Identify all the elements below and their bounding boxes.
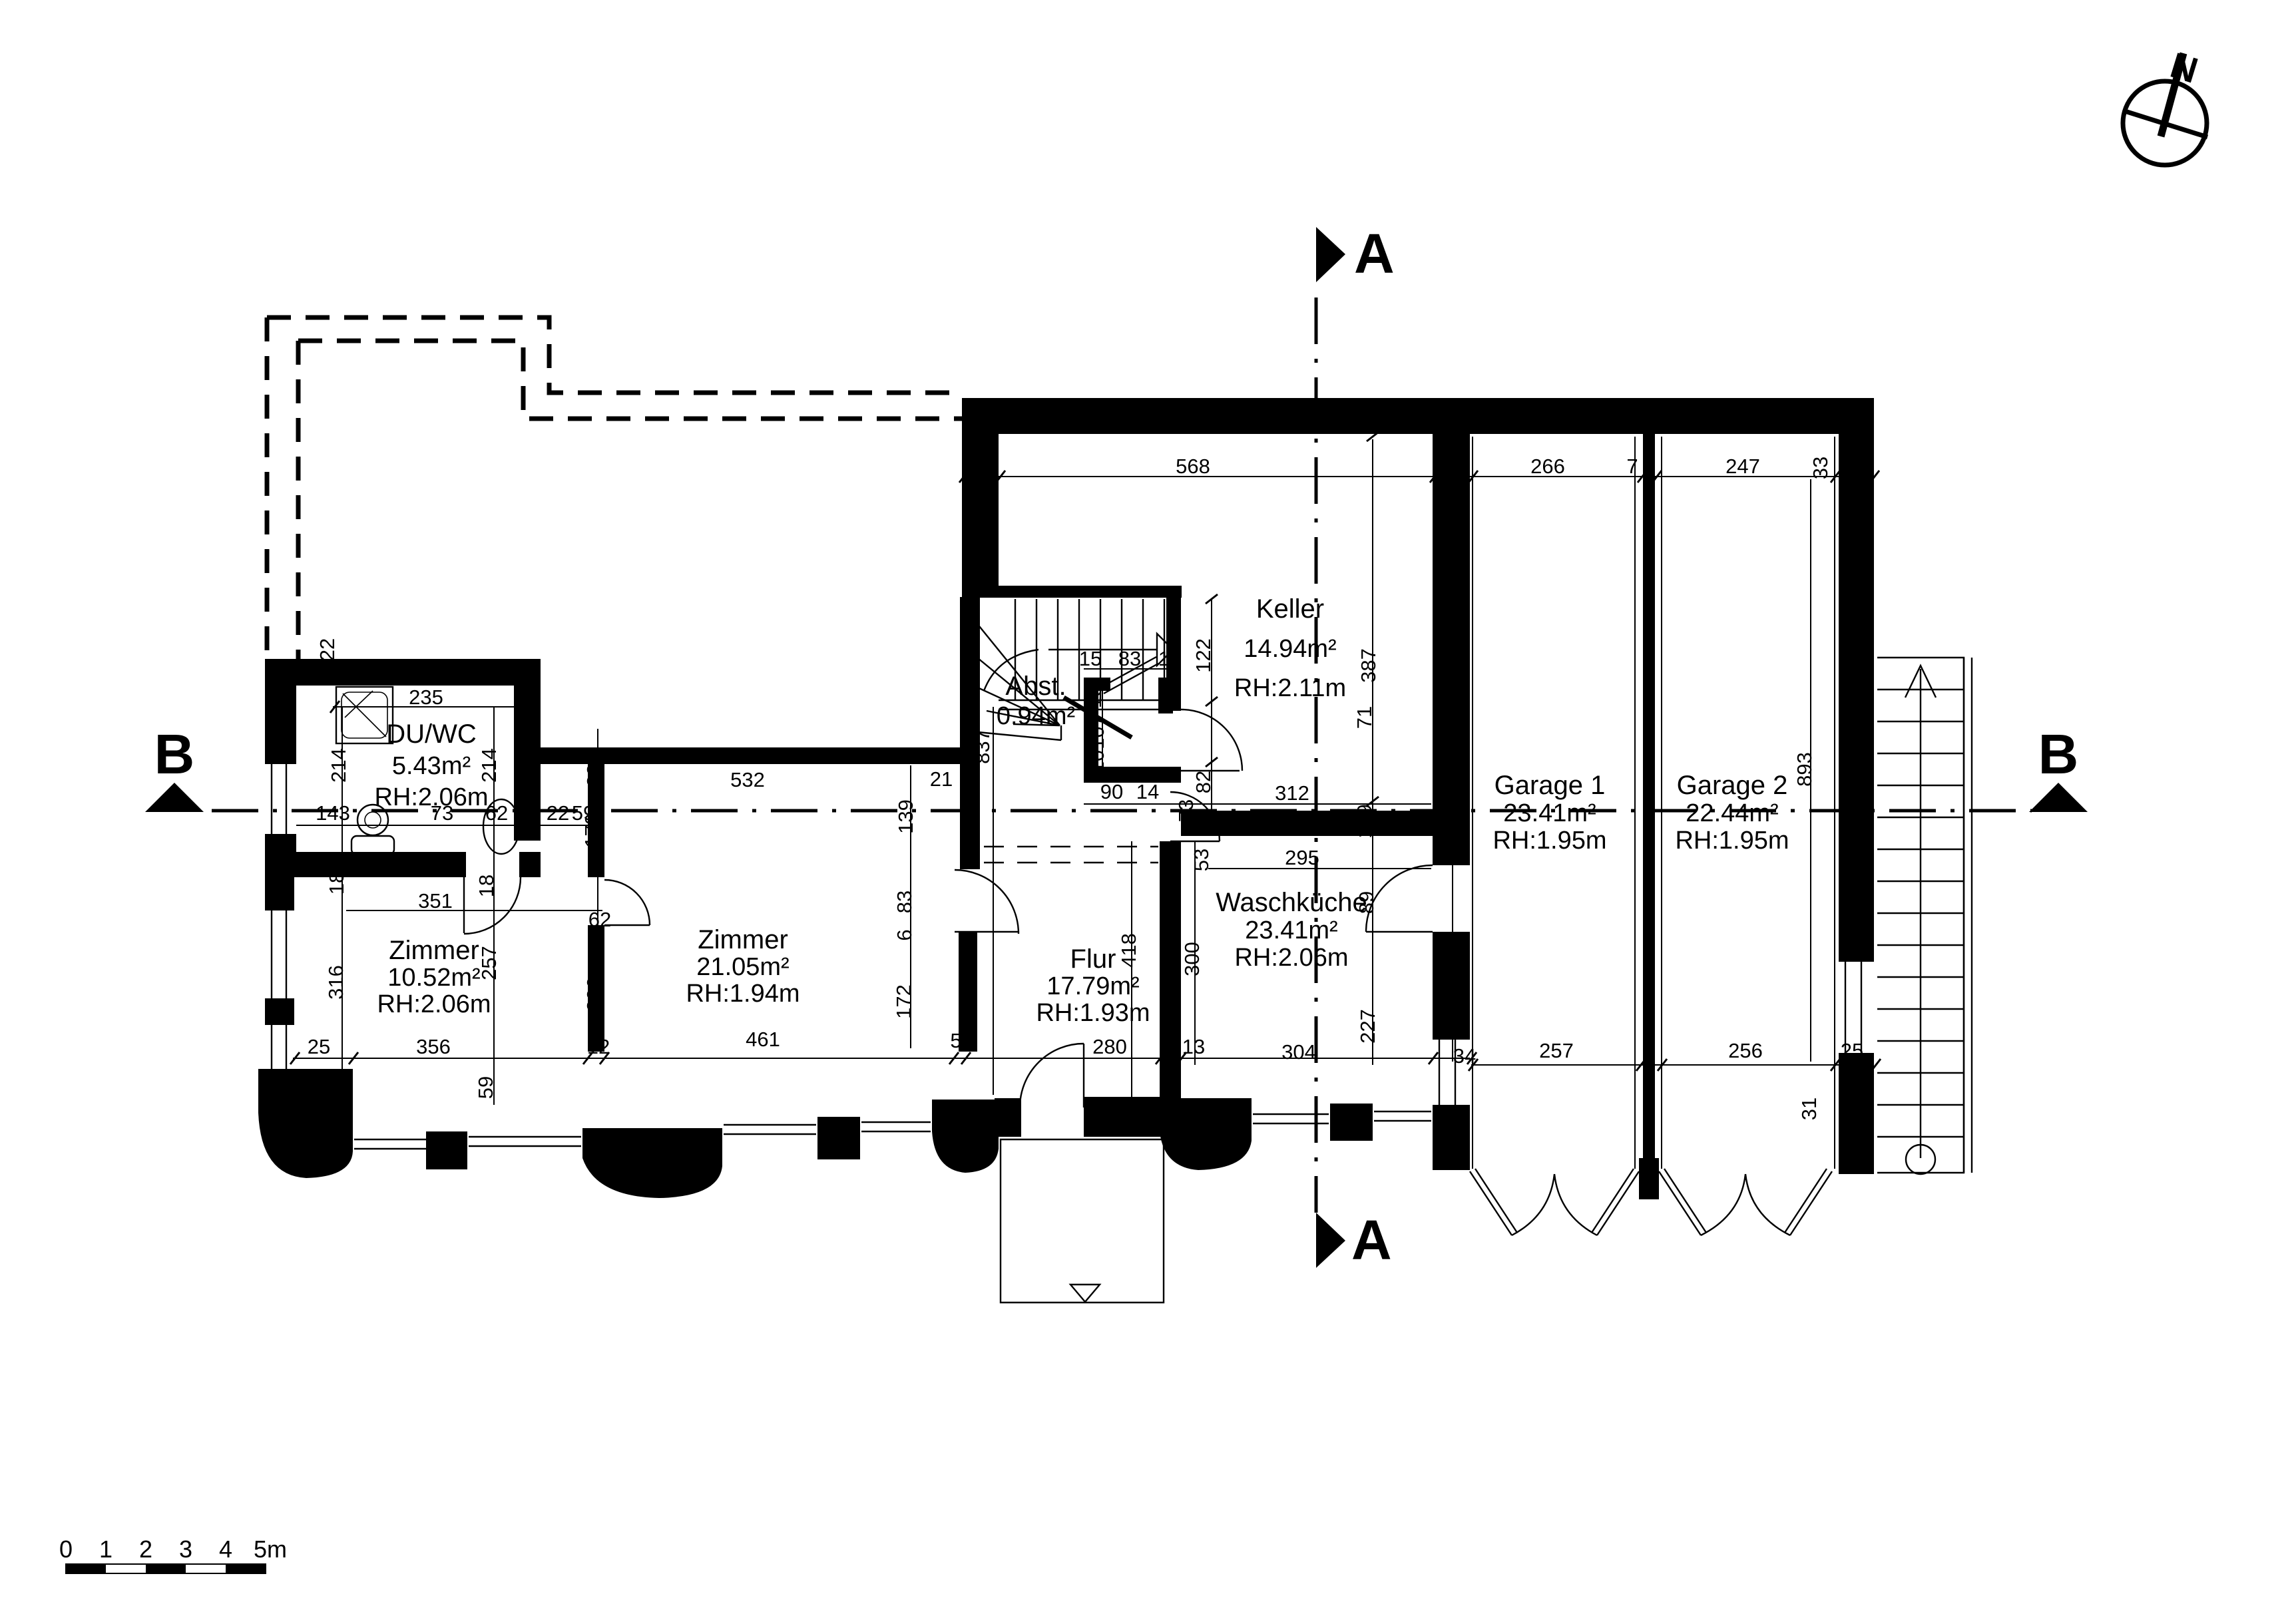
dimension-label: 532 <box>730 768 765 791</box>
dimension-label: 33 <box>1809 457 1832 479</box>
dimension-label: 83 <box>893 891 916 913</box>
dimension-label: 25 <box>308 1035 330 1058</box>
section-arrow-a-bottom-icon <box>1316 1213 1345 1268</box>
dimension-label: 10 <box>1085 750 1108 773</box>
dimension-label: 62 <box>588 908 611 931</box>
dimension-label: 418 <box>1117 933 1140 968</box>
dimension-label: 351 <box>418 889 453 912</box>
section-label-b-left: B <box>154 723 195 785</box>
room-area-label: 22.44m² <box>1686 799 1778 827</box>
dimension-label: 6 <box>893 929 916 940</box>
dimension-label: 247 <box>1725 455 1760 478</box>
scale-tick-label: 2 <box>139 1535 152 1563</box>
dimension-label: 71 <box>1353 706 1376 729</box>
dimension-label: 214 <box>477 748 501 783</box>
scale-tick-label: 4 <box>219 1535 232 1563</box>
room-name-label: Waschküche <box>1216 888 1367 917</box>
dimension-label: 461 <box>746 1028 780 1051</box>
dimension-label: 25 <box>1849 455 1871 478</box>
scale-tick-label: 3 <box>179 1535 192 1563</box>
dimension-label: 316 <box>324 965 347 1000</box>
upper-floor-dashed-outline <box>267 317 962 660</box>
dimension-label: 295 <box>1285 846 1319 869</box>
dimension-label: 280 <box>1092 1035 1127 1058</box>
room-area-label: 0.94m² <box>997 702 1075 730</box>
room-height-label: RH:1.94m <box>686 980 800 1008</box>
dimension-label: 122 <box>1192 638 1215 673</box>
dimension-label: 19 <box>1158 647 1181 670</box>
dimension-label: 34 <box>1440 455 1463 478</box>
scale-tick-label: 1 <box>99 1535 113 1563</box>
section-arrow-b-left-icon <box>145 783 204 812</box>
dimension-label: 22 <box>547 801 569 825</box>
dimension-label: 13 <box>1182 1035 1205 1058</box>
room-height-label: RH:2.06m <box>1234 944 1348 972</box>
dimension-label: 25 <box>1841 1039 1863 1062</box>
dimension-label: 18 <box>325 872 348 895</box>
dimension-label: 15 <box>1079 647 1102 670</box>
dimension-label: 895 <box>1434 750 1457 785</box>
scale-tick-label: 0 <box>59 1535 73 1563</box>
dimension-label: 14 <box>1136 780 1159 803</box>
section-label-b-right: B <box>2038 723 2079 785</box>
room-name-label: Zimmer <box>389 936 479 965</box>
dimension-label: 312 <box>1275 781 1309 805</box>
dimension-label: 7 <box>1626 455 1638 478</box>
room-name-label: Abst. <box>1005 672 1066 701</box>
room-name-label: Garage 2 <box>1677 771 1788 800</box>
room-height-label: RH:2.06m <box>374 783 488 811</box>
room-area-label: 21.05m² <box>696 953 789 981</box>
section-label-a-bottom: A <box>1351 1209 1392 1271</box>
room-area-label: 23.41m² <box>1245 916 1337 944</box>
section-arrow-a-top-icon <box>1316 227 1345 282</box>
floor-plan: A A B B N 012345m 2256834266724733251223… <box>0 0 2296 1612</box>
room-area-label: 23.41m² <box>1503 799 1596 827</box>
room-name-label: Zimmer <box>698 925 788 954</box>
exterior-stairs-icon <box>1877 658 1972 1174</box>
dimension-label: 22 <box>582 764 606 787</box>
room-name-label: DU/WC <box>386 719 477 749</box>
dimension-label: 256 <box>1728 1039 1763 1062</box>
dimension-label: 304 <box>1281 1040 1316 1064</box>
dimension-label: 139 <box>894 799 917 834</box>
dimension-label: 227 <box>1356 1009 1379 1044</box>
section-arrow-b-right-icon <box>2029 783 2088 812</box>
dimension-label: 83 <box>1118 647 1141 670</box>
room-height-label: RH:1.95m <box>1492 827 1606 855</box>
windows <box>272 764 1861 1149</box>
dimension-label: 356 <box>416 1035 451 1058</box>
dimension-label: 22 <box>316 638 339 661</box>
room-area-label: 17.79m² <box>1046 972 1139 1000</box>
entrance-porch <box>1001 1139 1164 1303</box>
dimension-label: 837 <box>971 729 994 764</box>
dimension-label: 62 <box>485 801 508 825</box>
dimension-label: 73 <box>1174 799 1198 822</box>
dimension-label: 53 <box>1190 849 1213 871</box>
scale-bar: 012345m <box>59 1535 287 1573</box>
room-name-label: Flur <box>1070 944 1116 974</box>
dimension-label: 300 <box>1180 942 1204 976</box>
section-label-a-top: A <box>1354 222 1395 285</box>
north-arrow-icon: N <box>2123 45 2207 165</box>
dimension-label: 82 <box>1192 771 1215 793</box>
dimension-label: 10 <box>1082 686 1106 708</box>
dimension-label: 257 <box>477 946 501 980</box>
room-area-label: 14.94m² <box>1244 635 1336 663</box>
dimension-label: 143 <box>316 801 350 825</box>
room-name-label: Garage 1 <box>1494 771 1606 800</box>
room-area-label: 10.52m² <box>387 964 480 992</box>
dimension-label: 31 <box>1797 1098 1821 1120</box>
dimension-label: 257 <box>1539 1039 1574 1062</box>
room-height-label: RH:2.11m <box>1234 674 1346 702</box>
dimension-label: 172 <box>892 984 915 1019</box>
room-height-label: RH:1.95m <box>1675 827 1789 855</box>
dimension-label: 21 <box>930 767 953 791</box>
dimension-label: 107 <box>1085 715 1108 749</box>
room-height-label: RH:1.93m <box>1036 999 1150 1027</box>
dimension-label: 59 <box>474 1076 497 1099</box>
room-height-label: RH:2.06m <box>377 990 491 1018</box>
dimension-label: 109 <box>1353 804 1376 839</box>
dimension-label: 893 <box>1793 752 1816 787</box>
dimension-label: 12 <box>587 1035 610 1058</box>
north-label: N <box>2166 45 2202 91</box>
dimension-label: 235 <box>409 686 443 709</box>
dimension-label: 170 <box>580 813 604 848</box>
dimension-label: 387 <box>1357 648 1380 683</box>
dimension-label: 90 <box>1100 780 1123 803</box>
dimension-label: 56 <box>323 1076 346 1099</box>
room-area-label: 5.43m² <box>392 752 471 780</box>
dimension-label: 266 <box>1530 455 1565 478</box>
room-name-label: Keller <box>1256 594 1324 624</box>
dimension-label: 18 <box>475 875 498 897</box>
scale-tick-label: 5m <box>254 1535 287 1563</box>
dimension-label: 34 <box>1453 1044 1476 1068</box>
dimension-label: 214 <box>327 748 350 783</box>
dimension-label: 5 <box>950 1029 961 1052</box>
dimension-label: 206 <box>582 977 606 1012</box>
dimension-label: 568 <box>1176 455 1210 478</box>
dimension-label: 22 <box>962 455 985 478</box>
